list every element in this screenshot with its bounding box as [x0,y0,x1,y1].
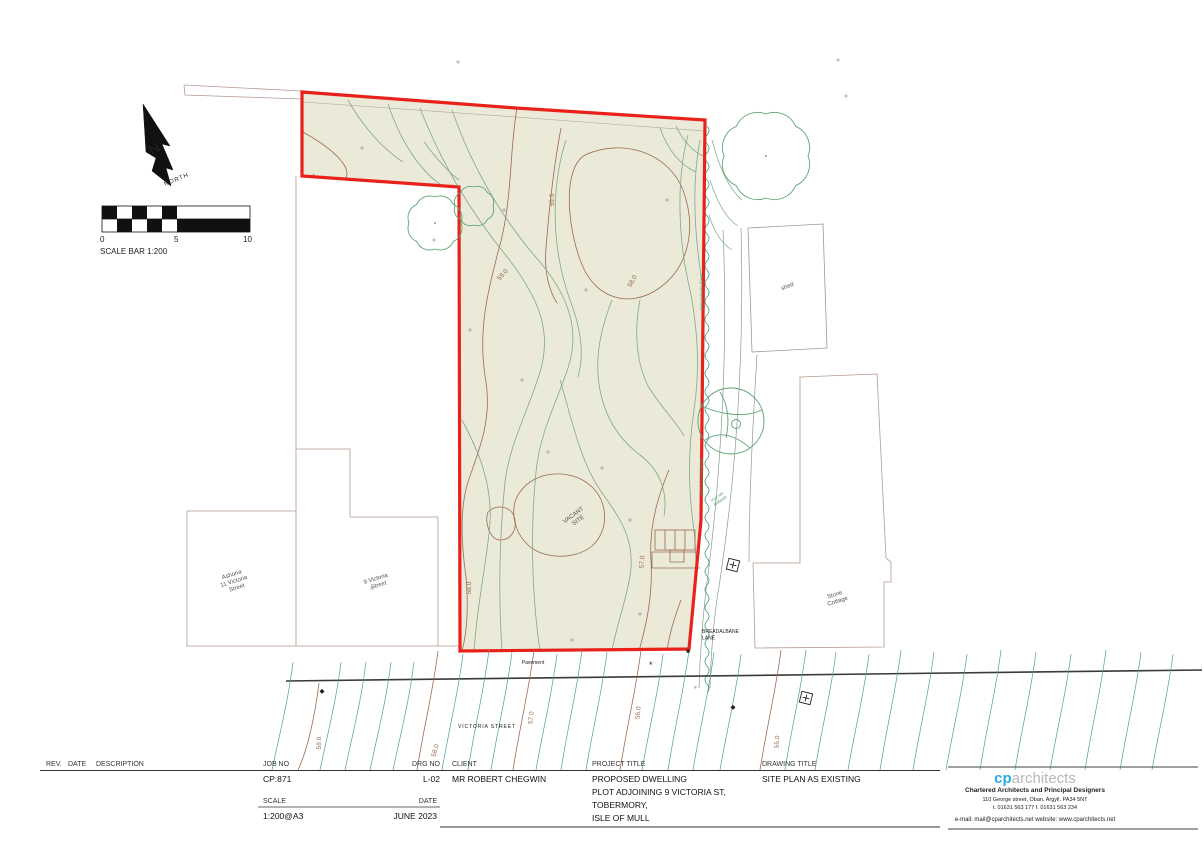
contour-line [913,652,934,770]
contour-line [561,650,582,770]
brand-logo: cparchitects [994,770,1076,787]
scale-bar-tick-0: 0 [100,235,105,244]
project-title-label: PROJECT TITLE [592,761,646,768]
pavement-label: Pavement [522,660,545,666]
client-label: CLIENT [452,761,478,768]
spot-height-icon [432,238,436,242]
date-value: JUNE 2023 [394,811,438,821]
contour-label: 58.0 [431,743,441,757]
contour-line [442,654,463,770]
contour-line [880,650,901,770]
contour-line [272,662,293,770]
brand-phone: t. 01631 563 177 f. 01631 563 234 [993,805,1077,811]
spot-height-icon [836,58,840,62]
contour-label: 57.0 [527,711,535,725]
scale-bar-tick-5: 5 [174,235,179,244]
shed-label: shed [780,282,794,292]
hydrant-note: Hyd wtr Bollards [710,490,728,507]
contour-label: 57.0 [639,555,647,568]
contour-label: 56.0 [634,706,642,720]
stone-cottage-outline [753,374,891,648]
contour-line [320,662,341,770]
contour-line [642,654,663,770]
victoria-street-label: VICTORIA STREET [458,724,516,730]
neighbor-mid-label: 9 Victoria Street [363,572,392,593]
contour-line [946,654,967,770]
spot-height-icon [844,94,848,98]
kerb-line [286,670,1202,681]
contour-line [1085,650,1106,770]
contour-line [491,652,512,770]
street [272,650,1202,770]
street-contours [272,650,1173,770]
drawing-title-value: SITE PLAN AS EXISTING [762,774,861,784]
contour-line [815,652,836,770]
date-label: DATE [419,798,437,805]
contour-line [536,654,557,770]
track-strip [184,85,302,99]
contour-line [1152,654,1173,770]
contour-label: 59.0 [316,736,323,749]
contour-line [1015,652,1036,770]
marker-diamond [731,705,736,710]
site-plan-drawing: N NORTH 0 5 10 SCALE BAR 1:200 [0,0,1204,852]
fence-note: post and wire fence [699,273,704,310]
marker-small [694,686,697,689]
title-block: REV. DATE DESCRIPTION JOB NO CP:871 DRG … [40,761,940,827]
utility-pole-icon [799,691,812,704]
architect-logo-block: cparchitects Chartered Architects and Pr… [948,767,1198,829]
brand-contact: e-mail: mail@cparchitects.net website: w… [955,817,1116,823]
contour-line [1120,652,1141,770]
date-col-header: DATE [68,761,86,768]
contour-line [393,662,414,770]
description-header: DESCRIPTION [96,761,144,768]
scale-bar-tick-10: 10 [243,235,252,244]
job-no-label: JOB NO [263,761,290,768]
contour-label: 58.0 [466,581,473,594]
spot-height-icon [456,60,460,64]
scale-value: 1:200@A3 [263,811,304,821]
bank-lines [709,140,742,250]
contour-line [298,683,319,770]
project-title-value: PROPOSED DWELLING PLOT ADJOINING 9 VICTO… [592,774,728,823]
contour-line [370,662,391,770]
drg-no-value: L-02 [423,774,440,784]
job-no-value: CP:871 [263,774,292,784]
client-value: MR ROBERT CHEGWIN [452,774,546,784]
brand-address: 110 George street, Oban, Argyll. PA34 5N… [983,797,1089,803]
utility-pole-icon [726,558,739,571]
neighbor-left-label: Ashona 11 Victoria Street [218,568,252,596]
scale-label: SCALE [263,798,286,805]
scale-bar: 0 5 10 SCALE BAR 1:200 [100,206,252,256]
contour-line [668,650,689,770]
contour-line [513,650,534,770]
contour-line [980,650,1001,770]
contour-line [760,650,781,770]
drawing-sheet: N NORTH 0 5 10 SCALE BAR 1:200 [0,0,1204,852]
drawing-title-label: DRAWING TITLE [762,761,817,768]
contour-line [848,654,869,770]
stone-cottage-label: Stone Cottage [825,589,850,608]
contour-line [468,650,489,770]
hydrant-marker: * [649,660,653,670]
fence-note: post and wire fence [699,458,704,495]
contour-label: 55.0 [774,735,781,748]
contour-line [345,662,366,770]
contour-label: 59.0 [549,193,556,206]
scale-bar-caption: SCALE BAR 1:200 [100,247,168,256]
marker-diamond [687,650,690,653]
contour-line [586,652,607,770]
contour-line [720,654,741,770]
drg-no-label: DRG NO [412,761,441,768]
marker-diamond [320,689,325,694]
contour-line [785,650,806,770]
breadalbane-lane-label: BREADALBANE LANE [702,629,740,642]
tree-icon [698,388,764,454]
rev-header: REV. [46,761,62,768]
north-arrow: N NORTH [143,104,190,188]
brand-tagline: Chartered Architects and Principal Desig… [965,787,1105,794]
